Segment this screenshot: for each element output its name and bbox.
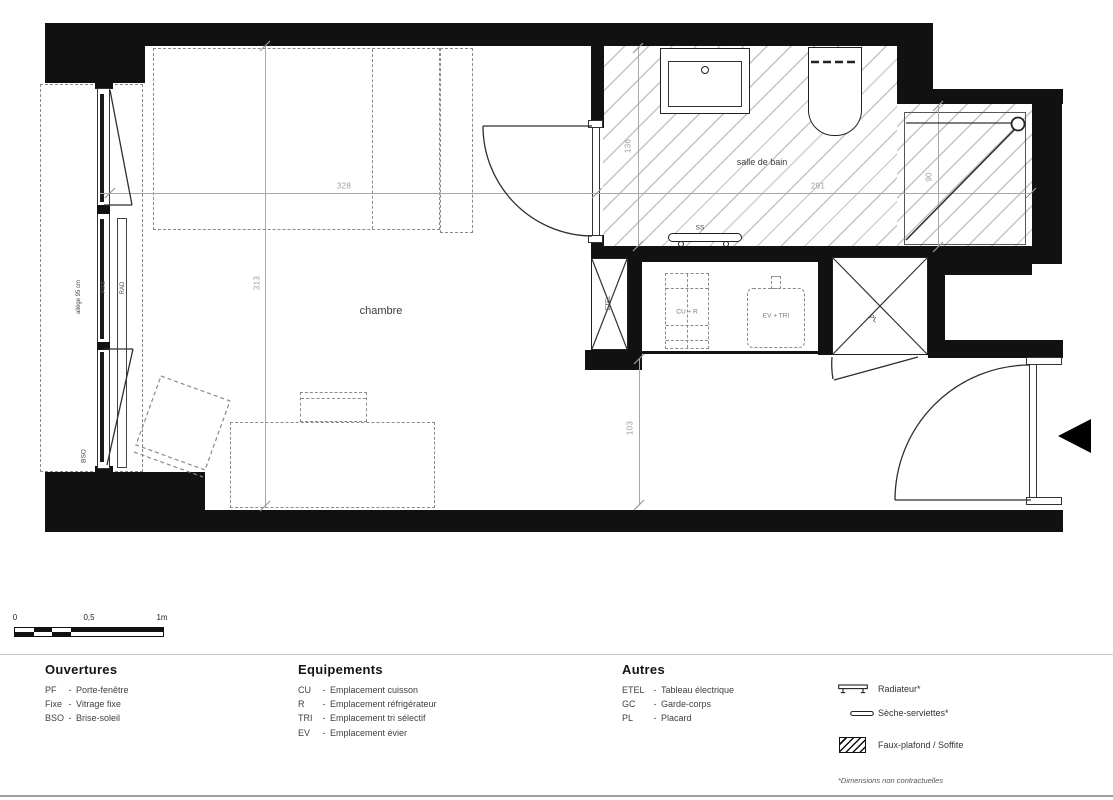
legend-title-ouvertures: Ouvertures bbox=[45, 662, 117, 677]
scale-cell bbox=[34, 632, 53, 636]
scale-tick-0: 0 bbox=[13, 613, 17, 622]
chair-rotated-extra-edge bbox=[134, 452, 203, 477]
bathroom-door-swing-arc bbox=[483, 126, 592, 236]
towel-dryer-label: SS bbox=[696, 225, 705, 232]
window-casement-top-diagonal bbox=[110, 90, 132, 205]
plan-vector-overlay bbox=[0, 0, 1113, 560]
closet-door-swing-arc bbox=[832, 357, 833, 379]
legend-separator: - bbox=[64, 711, 76, 725]
dim-tick bbox=[592, 188, 602, 198]
dim-tick bbox=[933, 242, 943, 252]
legend-label: Vitrage fixe bbox=[76, 697, 121, 711]
legend-label: Placard bbox=[661, 711, 692, 725]
scale-bar-row bbox=[15, 632, 163, 636]
legend-item: CU - Emplacement cuisson bbox=[298, 683, 437, 697]
legend-title-equipements: Equipements bbox=[298, 662, 383, 677]
legend-abbr: CU bbox=[298, 683, 318, 697]
dim-label-313: 313 bbox=[253, 276, 262, 290]
scale-cell bbox=[71, 632, 90, 636]
scale-cell bbox=[52, 632, 71, 636]
legend-item: PL - Placard bbox=[622, 711, 734, 725]
shower-door-diagonal bbox=[906, 127, 1017, 240]
dim-tick bbox=[933, 101, 943, 111]
floor-plan-page: { "plan": { "rooms": { "chambre": "chamb… bbox=[0, 0, 1113, 800]
dim-tick bbox=[105, 188, 115, 198]
scale-cell bbox=[15, 632, 34, 636]
legend-separator: - bbox=[64, 683, 76, 697]
floor-plan: chambre salle de bain 328 291 313 136 10… bbox=[0, 0, 1113, 560]
entry-door-swing-arc bbox=[895, 365, 1030, 500]
dim-label-136: 136 bbox=[624, 139, 633, 153]
page-bottom-rule bbox=[0, 795, 1113, 797]
false-ceiling-symbol-label: Faux-plafond / Soffite bbox=[878, 740, 963, 750]
cooking-fridge-label: CU + R bbox=[676, 309, 698, 316]
sink-tri-label: EV + TRI bbox=[763, 313, 789, 320]
closet-door-leaf-line bbox=[834, 357, 918, 380]
dim-tick bbox=[633, 241, 643, 251]
radiator-symbol-icon bbox=[838, 684, 868, 696]
legend-abbr: TRI bbox=[298, 711, 318, 725]
legend-label: Emplacement cuisson bbox=[330, 683, 418, 697]
dim-tick bbox=[260, 41, 270, 51]
legend-abbr: EV bbox=[298, 726, 318, 740]
room-label-chambre: chambre bbox=[360, 305, 403, 317]
legend-title-autres: Autres bbox=[622, 662, 665, 677]
legend-separator: - bbox=[649, 683, 661, 697]
legend-label: Brise-soleil bbox=[76, 711, 120, 725]
legend-label: Emplacement réfrigérateur bbox=[330, 697, 437, 711]
dim-label-291: 291 bbox=[811, 182, 825, 191]
window-fixed-label: FIXE bbox=[101, 281, 107, 293]
dim-label-328: 328 bbox=[337, 182, 351, 191]
legend-separator: - bbox=[318, 711, 330, 725]
scale-bar bbox=[14, 627, 164, 637]
radiator-symbol-label: Radiateur* bbox=[878, 684, 921, 694]
legend-abbr: PF bbox=[45, 683, 64, 697]
legend-item: PF - Porte-fenêtre bbox=[45, 683, 129, 697]
room-label-salle-de-bain: salle de bain bbox=[737, 157, 788, 167]
radiator-label: RAD bbox=[120, 282, 126, 295]
legend-label: Emplacement tri sélectif bbox=[330, 711, 426, 725]
legend-item: ETEL - Tableau électrique bbox=[622, 683, 734, 697]
false-ceiling-swatch-icon bbox=[839, 737, 866, 753]
legend-label: Tableau électrique bbox=[661, 683, 734, 697]
scale-tick-05: 0,5 bbox=[83, 613, 94, 622]
entry-arrow bbox=[1058, 419, 1091, 453]
legend-abbr: BSO bbox=[45, 711, 64, 725]
dim-tick bbox=[634, 354, 644, 364]
legend-item: R - Emplacement réfrigérateur bbox=[298, 697, 437, 711]
legend-abbr: Fixe bbox=[45, 697, 64, 711]
dim-label-103: 103 bbox=[626, 421, 635, 435]
window-casement-bottom-diagonal bbox=[107, 349, 133, 465]
legend-label: Emplacement évier bbox=[330, 726, 407, 740]
legend-separator: - bbox=[649, 697, 661, 711]
legend-footnote: *Dimensions non contractuelles bbox=[838, 776, 943, 785]
legend-label: Garde-corps bbox=[661, 697, 711, 711]
legend-separator: - bbox=[64, 697, 76, 711]
towel-dryer-symbol-icon bbox=[850, 710, 874, 718]
legend-item: TRI - Emplacement tri sélectif bbox=[298, 711, 437, 725]
legend-item: BSO - Brise-soleil bbox=[45, 711, 129, 725]
sill-height-label: allège 95 cm bbox=[76, 280, 82, 314]
legend-item: Fixe - Vitrage fixe bbox=[45, 697, 129, 711]
legend-column-equipements: CU - Emplacement cuisson R - Emplacement… bbox=[298, 683, 437, 740]
dim-tick bbox=[633, 43, 643, 53]
shower-head bbox=[1012, 118, 1025, 131]
scale-cell bbox=[89, 632, 163, 636]
legend-separator: - bbox=[649, 711, 661, 725]
legend-abbr: R bbox=[298, 697, 318, 711]
legend-abbr: GC bbox=[622, 697, 649, 711]
legend-separator: - bbox=[318, 697, 330, 711]
legend-abbr: PL bbox=[622, 711, 649, 725]
chair-rotated-outline bbox=[136, 376, 230, 470]
legend-column-ouvertures: PF - Porte-fenêtre Fixe - Vitrage fixe B… bbox=[45, 683, 129, 726]
dim-tick bbox=[260, 501, 270, 511]
bso-label: BSO bbox=[81, 449, 88, 463]
legend-item: EV - Emplacement évier bbox=[298, 726, 437, 740]
legend-label: Porte-fenêtre bbox=[76, 683, 129, 697]
etel-label: ETEL bbox=[606, 295, 612, 310]
legend-abbr: ETEL bbox=[622, 683, 649, 697]
legend-divider bbox=[0, 654, 1113, 655]
scale-tick-1m: 1m bbox=[156, 613, 167, 622]
towel-dryer-symbol-label: Sèche-serviettes* bbox=[878, 708, 949, 718]
dim-label-90: 90 bbox=[925, 172, 934, 182]
dim-tick bbox=[1026, 188, 1036, 198]
dim-tick bbox=[634, 500, 644, 510]
legend-item: GC - Garde-corps bbox=[622, 697, 734, 711]
legend-column-autres: ETEL - Tableau électrique GC - Garde-cor… bbox=[622, 683, 734, 726]
legend-separator: - bbox=[318, 726, 330, 740]
legend-separator: - bbox=[318, 683, 330, 697]
